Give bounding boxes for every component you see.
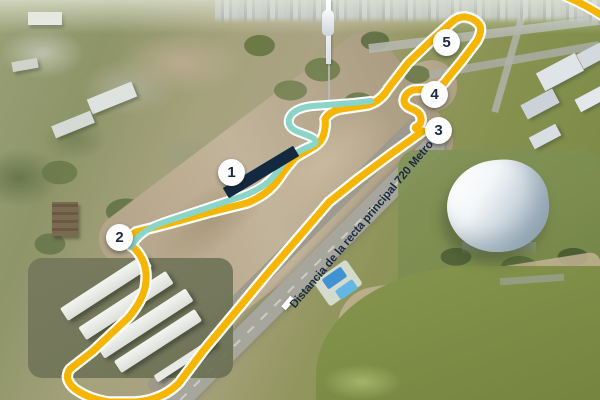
turn-marker-2-number: 2 [115,229,123,246]
turn-marker-5: 5 [433,29,460,56]
circuit-route-overlay [0,0,600,400]
turn-marker-4-number: 4 [430,86,438,103]
circuit-route-outline [67,17,480,400]
turn-marker-1: 1 [218,159,245,186]
aerial-circuit-map: Distancia de la recta principal 720 Metr… [0,0,600,400]
turn-marker-5-number: 5 [442,34,450,51]
turn-marker-4: 4 [421,81,448,108]
turn-marker-2: 2 [106,224,133,251]
turn-marker-3: 3 [425,117,452,144]
circuit-route-casing [67,17,480,400]
turn-marker-1-number: 1 [227,164,235,181]
turn-marker-3-number: 3 [434,122,442,139]
